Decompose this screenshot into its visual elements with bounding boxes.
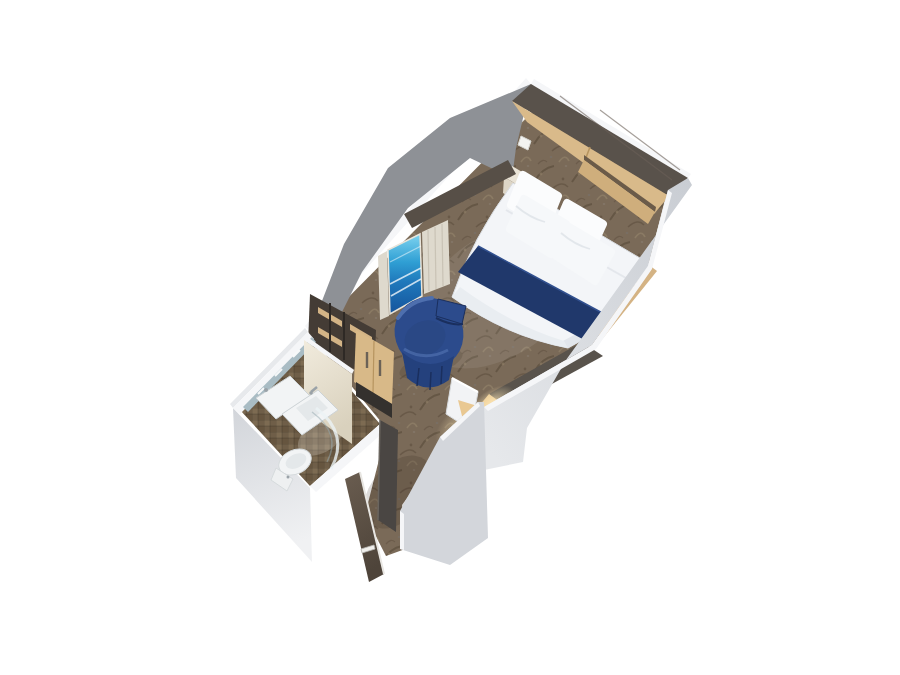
- stateroom-render-page: [0, 0, 900, 675]
- shower-control: [264, 388, 268, 392]
- vestibule-wall-cut-edge: [400, 511, 404, 550]
- toilet-flush: [287, 476, 290, 479]
- bathroom-door: [378, 420, 398, 532]
- stateroom-cutaway-render: [0, 0, 900, 675]
- faucet-base: [309, 391, 313, 395]
